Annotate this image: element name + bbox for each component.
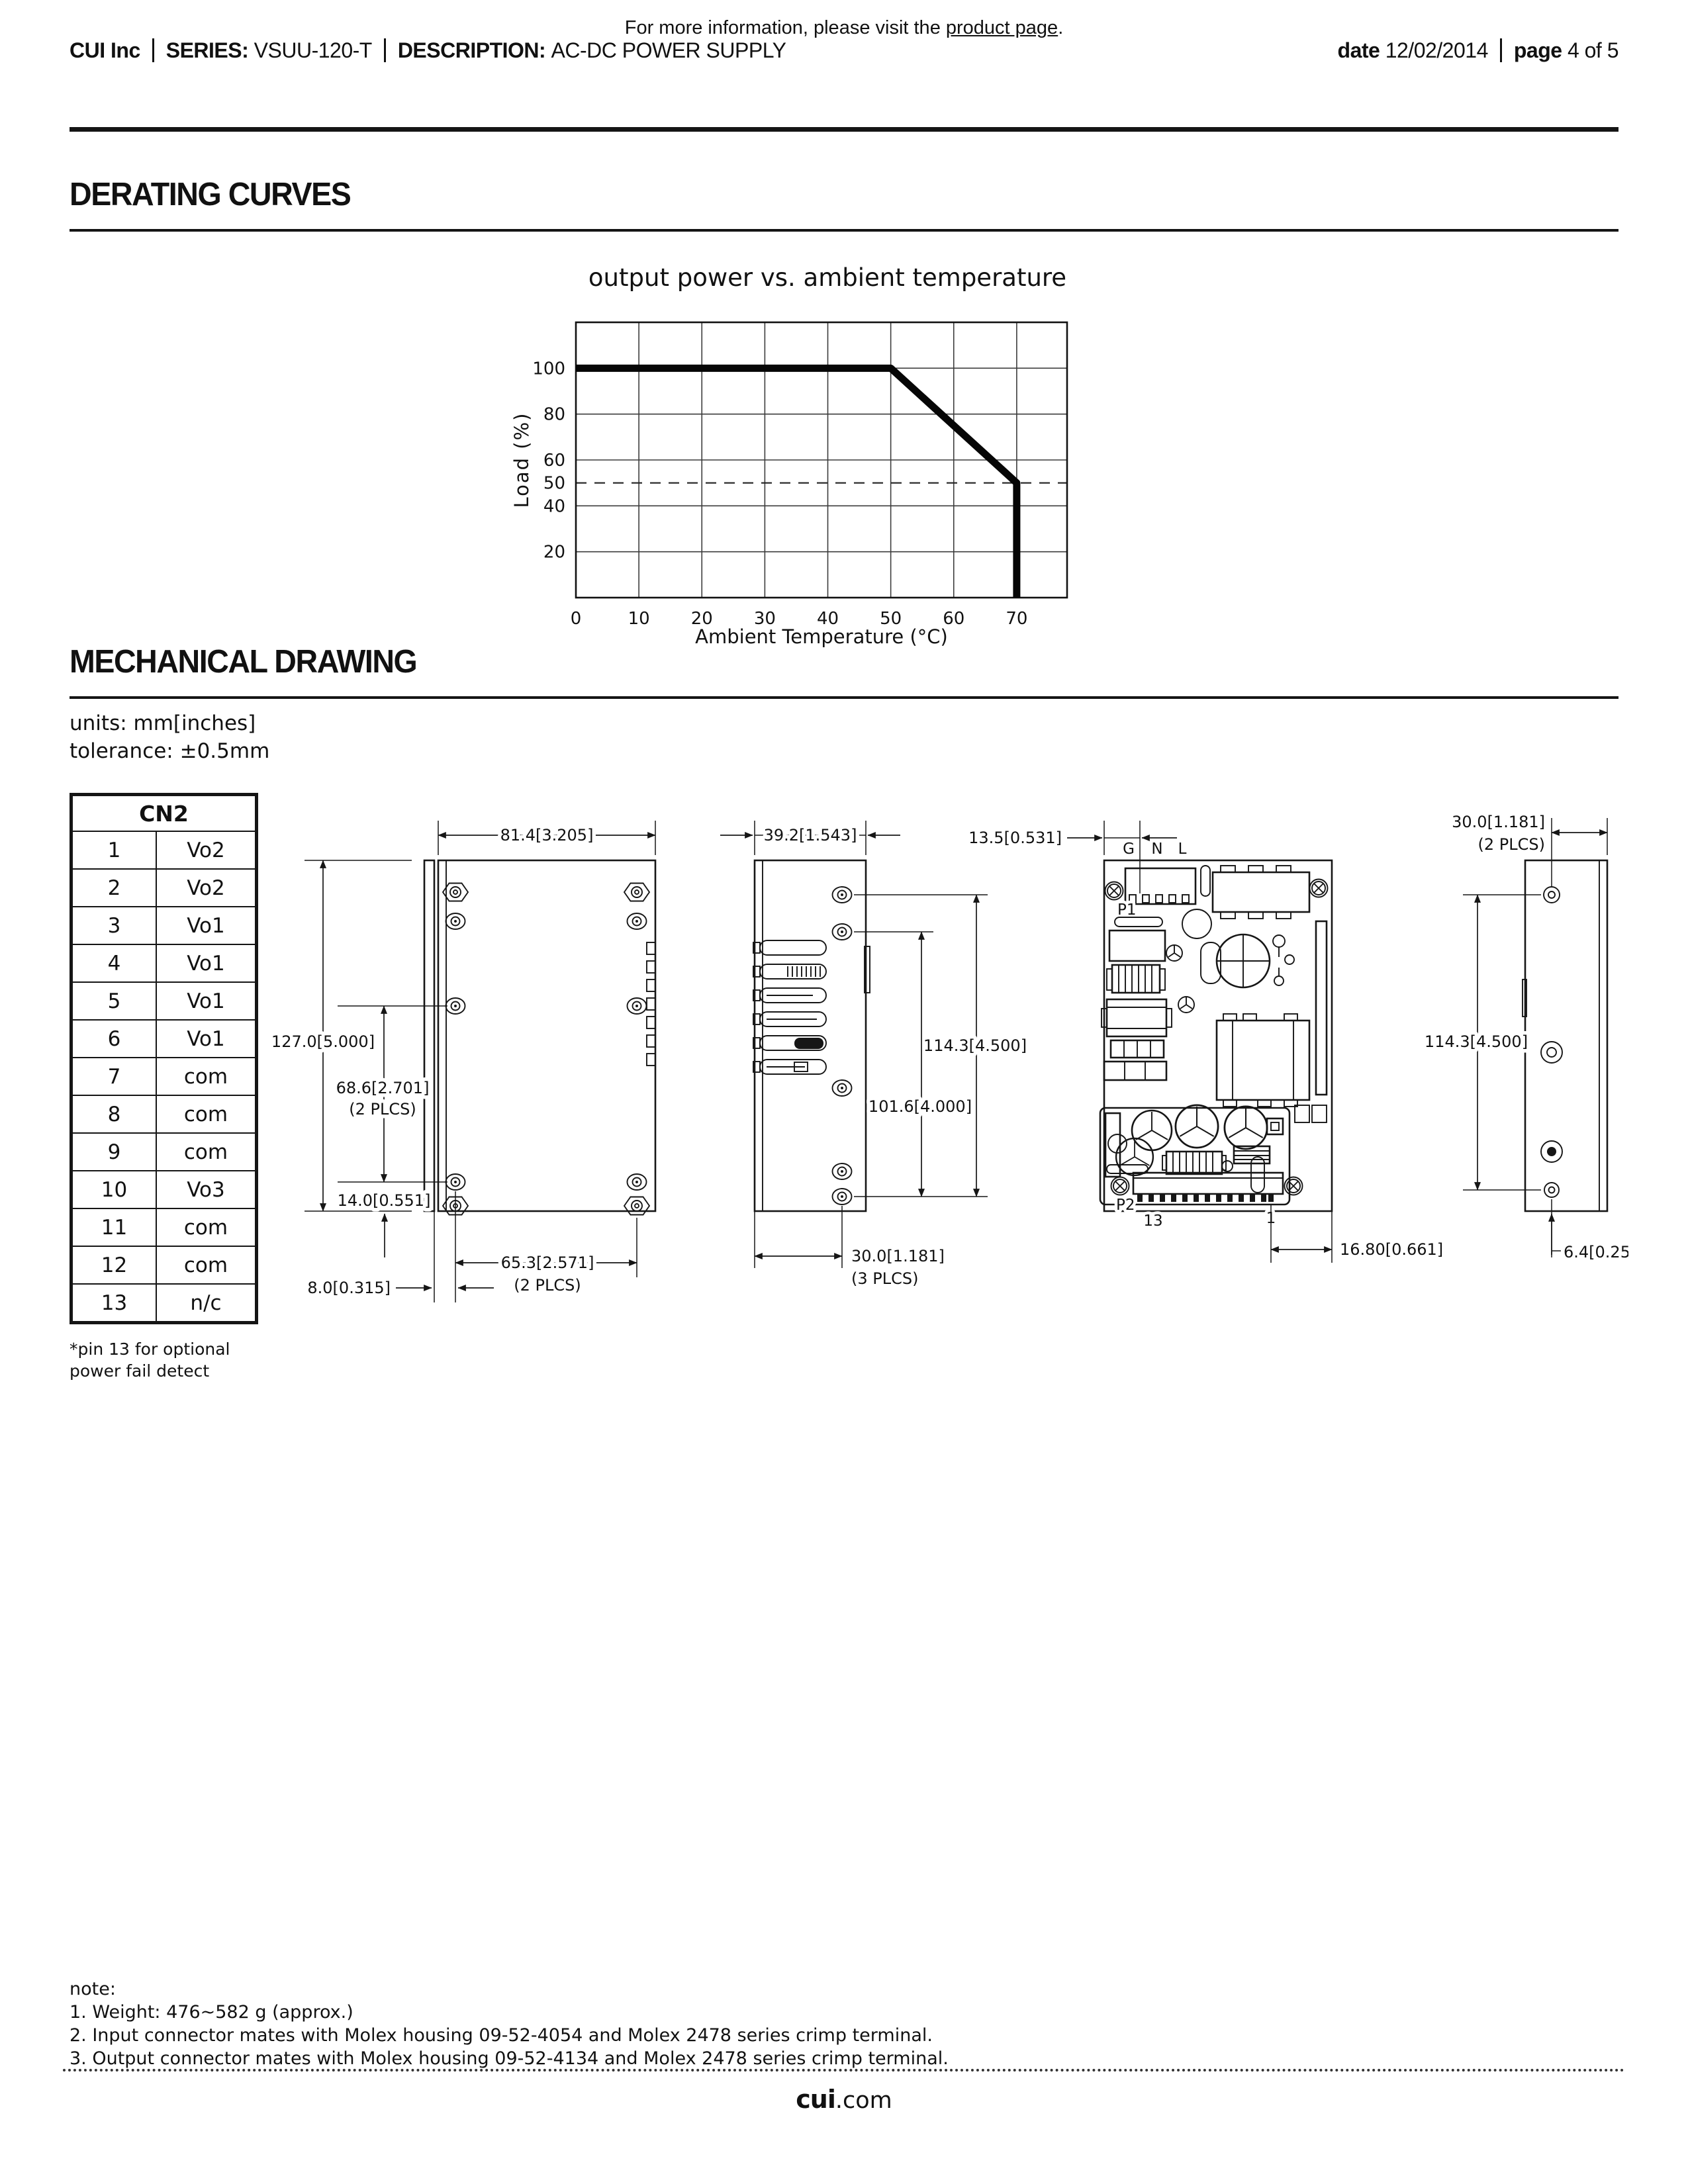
drawing-back-view: 30.0[1.181] (2 PLCS) 114.3[4.500] 6.4[0.… [1425,813,1628,1261]
derating-chart: 0102030405060702040506080100 Ambient Tem… [503,304,1099,662]
dim-d4-width-note: (2 PLCS) [1478,835,1545,854]
pin-number: 7 [71,1058,157,1095]
series-value: VSUU-120-T [254,38,372,62]
footnote-line: power fail detect [70,1360,230,1382]
header-bar: CUI IncSERIES: VSUU-120-TDESCRIPTION: AC… [70,38,1618,63]
cn2-pin-table: CN2 1Vo2 2Vo2 3Vo1 4Vo1 5Vo1 6Vo1 7com 8… [70,793,258,1324]
small-capacitor [1166,945,1182,961]
drawing-side-view: 39.2[1.543] 114.3[4.500] 101.6[4.000] 30… [720,821,1027,1288]
table-row: 3Vo1 [71,907,257,944]
input-transformer [1213,866,1309,919]
pin-number: 2 [71,869,157,907]
mechanical-drawings: 81.4[3.205] 127.0[5.000] 68.6[2.701] (2 … [265,794,1628,1324]
date-value: 12/02/2014 [1385,38,1488,62]
main-transformer [1217,1014,1309,1107]
vent-fins [647,942,655,1066]
chassis-outline [1525,860,1607,1211]
footer-rule [63,2069,1625,2071]
page-label: page [1514,38,1562,62]
pin-net: Vo1 [156,1020,257,1058]
table-row: 9com [71,1133,257,1171]
input-terminal-block [1125,868,1196,904]
connector-label-p1: P1 [1117,901,1137,919]
table-row: 11com [71,1208,257,1246]
description-label: DESCRIPTION: [398,38,545,62]
table-row: 2Vo2 [71,869,257,907]
product-page-link[interactable]: product page [946,17,1058,38]
pin-number: 12 [71,1246,157,1284]
bulk-capacitor [1217,934,1294,987]
pin-net: Vo2 [156,869,257,907]
table-row: 7com [71,1058,257,1095]
pin13-label: 13 [1143,1212,1162,1230]
units-note: units: mm[inches] tolerance: ±0.5mm [70,709,269,765]
pin-net: com [156,1133,257,1171]
table-row: 10Vo3 [71,1171,257,1208]
mounting-flange [424,860,434,1211]
tolerance-line: tolerance: ±0.5mm [70,737,269,765]
dim-d1-hole-bottom: 14.0[0.551] [338,1191,431,1210]
dim-d4-hole-bottom: 6.4[0.252] [1564,1243,1628,1261]
svg-text:40: 40 [543,496,565,516]
svg-text:0: 0 [571,609,582,629]
section-rule [70,696,1618,699]
header-left: CUI IncSERIES: VSUU-120-TDESCRIPTION: AC… [70,38,786,63]
dim-d1-height: 127.0[5.000] [271,1032,375,1051]
terminal-label-ground: G [1123,841,1135,858]
pin-number: 1 [71,831,157,869]
svg-text:50: 50 [543,474,565,494]
pin-net: com [156,1095,257,1133]
output-pin-header [1133,1173,1283,1202]
pin-number: 8 [71,1095,157,1133]
footnote-line: *pin 13 for optional [70,1338,230,1360]
svg-text:70: 70 [1006,609,1027,629]
pin-number: 5 [71,982,157,1020]
pin-net: Vo2 [156,831,257,869]
note-item: 2. Input connector mates with Molex hous… [70,2024,949,2047]
section-title-mechanical: MECHANICAL DRAWING [70,643,416,680]
section-title-derating: DERATING CURVES [70,176,350,213]
svg-text:20: 20 [543,543,565,563]
svg-text:100: 100 [532,359,565,379]
dim-d1-hole-span: 65.3[2.571] [501,1253,594,1272]
dim-d1-hole-spacing: 68.6[2.701] [336,1079,430,1097]
input-filter-components [1102,917,1172,1080]
connector-label-p2: P2 [1116,1197,1135,1214]
pin-number: 10 [71,1171,157,1208]
section-rule [70,229,1618,232]
dim-d2-width: 39.2[1.543] [764,826,857,844]
note-item: 1. Weight: 476~582 g (approx.) [70,2001,949,2024]
screw-holes [833,887,852,1205]
dim-d4-height: 114.3[4.500] [1425,1032,1528,1051]
dim-d4-width: 30.0[1.181] [1452,813,1545,831]
table-row: 4Vo1 [71,944,257,982]
header-rule [70,127,1618,132]
notes-title: note: [70,1978,949,2001]
page-number: 4 of 5 [1568,38,1618,62]
screw-holes [1541,887,1562,1197]
footer-suffix: .com [835,2087,892,2114]
dim-d3-pin-offset: 16.80[0.661] [1340,1240,1443,1259]
svg-text:60: 60 [543,451,565,471]
divider [1500,38,1502,62]
pin-net: com [156,1208,257,1246]
dim-d2-inner: 101.6[4.000] [868,1097,972,1116]
pin-number: 4 [71,944,157,982]
pin-number: 13 [71,1284,157,1323]
footer-brand: cui [796,2085,835,2114]
header-right: date 12/02/2014page 4 of 5 [1338,38,1618,63]
top-note-suffix: . [1058,17,1063,38]
mounting-hardware [443,884,649,1215]
description-value: AC-DC POWER SUPPLY [551,38,786,62]
edge-bar [1316,921,1327,1095]
pin-number: 11 [71,1208,157,1246]
brand: CUI Inc [70,38,140,62]
pin-number: 9 [71,1133,157,1171]
terminal-label-neutral: N [1151,841,1162,858]
table-row: 8com [71,1095,257,1133]
chassis-outline [438,860,655,1211]
divider [384,38,386,62]
dim-d2-height: 114.3[4.500] [923,1036,1027,1055]
pin-net: Vo1 [156,907,257,944]
dim-d1-flange: 8.0[0.315] [307,1279,391,1297]
pin-number: 6 [71,1020,157,1058]
pin-net: n/c [156,1284,257,1323]
chart-title: output power vs. ambient temperature [430,263,1225,292]
connector-pins [753,940,826,1074]
dim-d2-bottom-note: (3 PLCS) [851,1269,918,1288]
dim-d3-offset: 13.5[0.531] [968,829,1062,847]
table-row: 6Vo1 [71,1020,257,1058]
dim-d2-bottom: 30.0[1.181] [851,1247,945,1265]
svg-text:80: 80 [543,405,565,425]
table-row: 5Vo1 [71,982,257,1020]
note-item: 3. Output connector mates with Molex hou… [70,2047,949,2070]
chart-plot: 0102030405060702040506080100 [532,322,1067,629]
pin13-footnote: *pin 13 for optional power fail detect [70,1338,230,1382]
dim-d1-hole-spacing-note: (2 PLCS) [349,1100,416,1118]
table-row: 12com [71,1246,257,1284]
svg-text:10: 10 [628,609,650,629]
pin-number: 3 [71,907,157,944]
date-label: date [1338,38,1380,62]
chart-y-axis-label: Load (%) [510,412,533,508]
drawing-front-view: 81.4[3.205] 127.0[5.000] 68.6[2.701] (2 … [271,821,655,1302]
component-circle [1182,909,1211,938]
pin-net: Vo3 [156,1171,257,1208]
chart-x-axis-label: Ambient Temperature (°C) [695,625,948,648]
terminal-label-line: L [1178,841,1187,858]
pin-net: Vo1 [156,982,257,1020]
pin-net: com [156,1246,257,1284]
pin-net: Vo1 [156,944,257,982]
top-note-prefix: For more information, please visit the [625,17,946,38]
small-capacitor [1178,997,1194,1013]
top-note: For more information, please visit the p… [0,17,1688,39]
units-line: units: mm[inches] [70,709,269,737]
pin-net: com [156,1058,257,1095]
divider [152,38,154,62]
footer-logo: cui.com [0,2085,1688,2114]
dim-d1-width: 81.4[3.205] [500,826,594,844]
dim-d1-hole-span-note: (2 PLCS) [514,1276,581,1295]
datasheet-page: For more information, please visit the p… [0,0,1688,2184]
cn2-table-block: CN2 1Vo2 2Vo2 3Vo1 4Vo1 5Vo1 6Vo1 7com 8… [70,793,258,1324]
table-row: 13n/c [71,1284,257,1323]
drawing-pcb-top-view: 13.5[0.531] G N L P1 [968,821,1443,1263]
cn2-table-title: CN2 [71,795,257,832]
notes-block: note: 1. Weight: 476~582 g (approx.) 2. … [70,1978,949,2070]
table-row: 1Vo2 [71,831,257,869]
series-label: SERIES: [166,38,249,62]
